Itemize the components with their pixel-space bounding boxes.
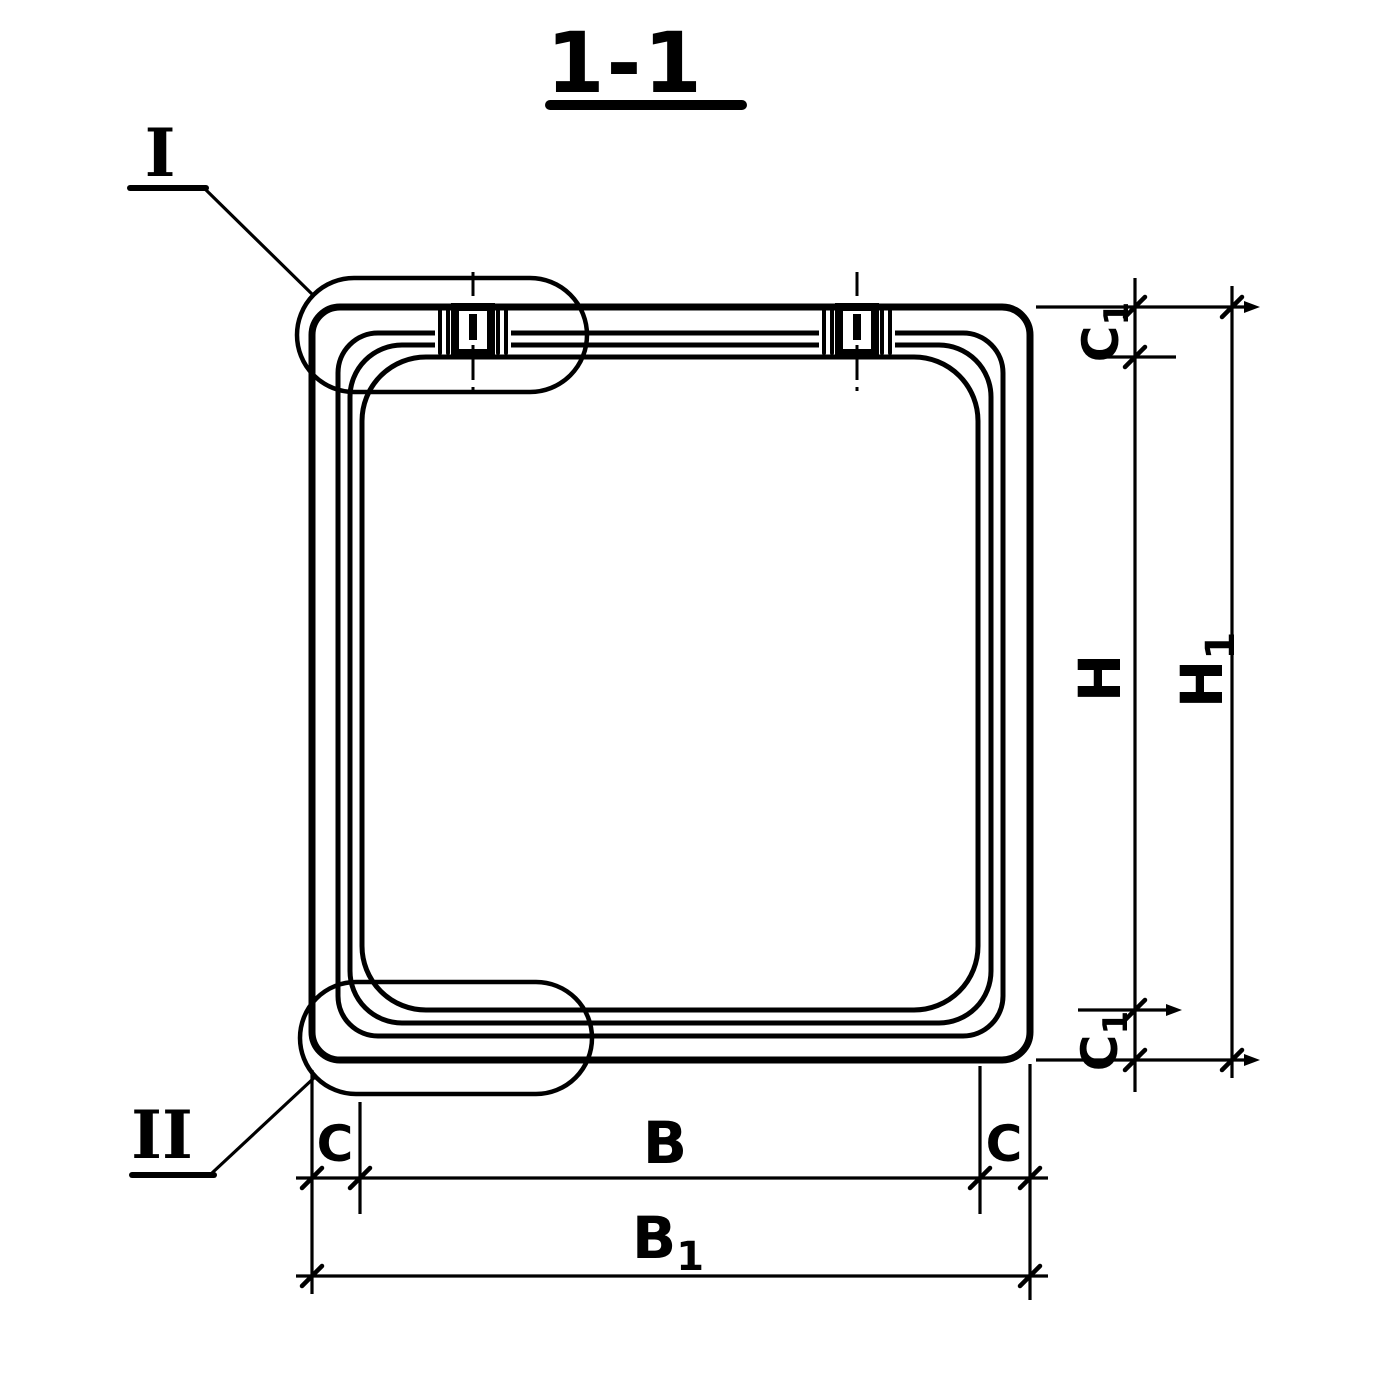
- dim-label-h: H: [1066, 654, 1134, 703]
- detail-ii-leader: [212, 1077, 315, 1173]
- top-slab-joint-left: [435, 272, 511, 398]
- dim-label-h1: H1: [1168, 632, 1244, 708]
- right-dimensions: C1 H H1 C1: [1036, 278, 1260, 1092]
- dim-label-c1-top: C1: [1072, 302, 1137, 362]
- detail-ii-callout: II: [131, 1077, 315, 1175]
- frame-inner-line-3: [362, 357, 978, 1010]
- dim-arrow: [1244, 301, 1260, 313]
- detail-i-leader: [204, 188, 314, 296]
- dim-arrow: [1244, 1054, 1260, 1066]
- detail-i-label: I: [145, 114, 176, 192]
- technical-drawing: 1-1: [0, 0, 1374, 1379]
- top-slab-joint-right: [819, 272, 895, 398]
- dim-arrow: [1166, 1004, 1182, 1016]
- section-title: 1-1: [546, 14, 704, 112]
- dim-label-b1: B1: [632, 1204, 704, 1280]
- detail-ii-label: II: [131, 1096, 193, 1174]
- dim-label-b: B: [643, 1109, 687, 1177]
- frame-inner-line-2: [350, 345, 991, 1023]
- bottom-dimensions: C B C B1: [296, 1064, 1048, 1300]
- detail-i-callout: I: [130, 114, 314, 296]
- dim-label-c1-bottom: C1: [1071, 1011, 1136, 1071]
- dim-label-c-right: C: [986, 1115, 1023, 1173]
- dim-label-c-left: C: [317, 1115, 354, 1173]
- frame-inner-line-1: [338, 333, 1003, 1036]
- frame-outer-outline: [312, 307, 1030, 1060]
